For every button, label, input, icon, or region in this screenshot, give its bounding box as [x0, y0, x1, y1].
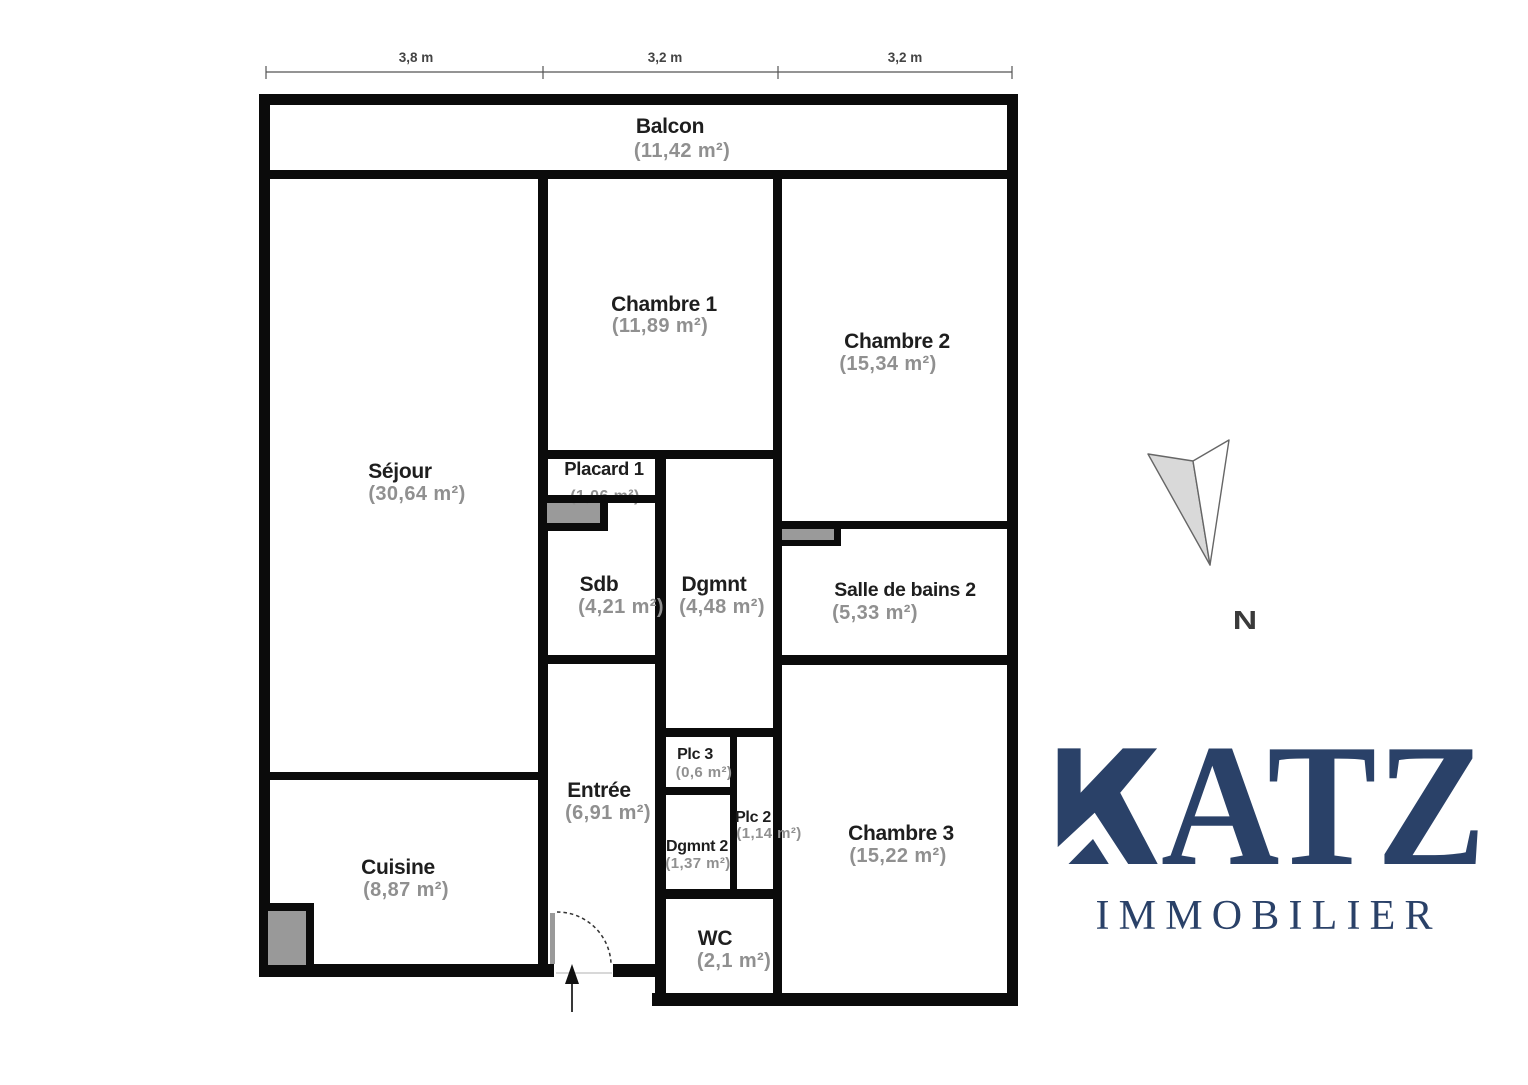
svg-text:Dgmnt 2: Dgmnt 2 — [666, 838, 728, 855]
svg-text:(11,42 m²): (11,42 m²) — [634, 140, 730, 162]
svg-text:(8,87 m²): (8,87 m²) — [363, 879, 449, 901]
svg-text:Placard 1: Placard 1 — [564, 458, 644, 479]
svg-text:Sdb: Sdb — [580, 573, 619, 596]
svg-text:Entrée: Entrée — [567, 779, 631, 802]
svg-text:(4,21 m²): (4,21 m²) — [578, 596, 664, 618]
svg-text:(0,6 m²): (0,6 m²) — [676, 764, 733, 781]
svg-text:Chambre 2: Chambre 2 — [844, 330, 950, 353]
svg-text:3,8 m: 3,8 m — [399, 50, 434, 65]
svg-text:(1,14 m²): (1,14 m²) — [736, 825, 801, 842]
svg-text:Salle de bains 2: Salle de bains 2 — [834, 579, 976, 601]
svg-text:Balcon: Balcon — [636, 115, 704, 138]
svg-text:(6,91 m²): (6,91 m²) — [565, 802, 651, 824]
svg-text:(4,48 m²): (4,48 m²) — [679, 596, 765, 618]
svg-text:Séjour: Séjour — [368, 460, 432, 483]
svg-text:Plc 3: Plc 3 — [677, 746, 713, 763]
svg-text:3,2 m: 3,2 m — [888, 50, 923, 65]
svg-text:3,2 m: 3,2 m — [648, 50, 683, 65]
svg-text:(5,33 m²): (5,33 m²) — [832, 602, 918, 624]
svg-text:(1,37 m²): (1,37 m²) — [665, 855, 730, 872]
svg-text:(11,89 m²): (11,89 m²) — [612, 315, 708, 337]
svg-text:Cuisine: Cuisine — [361, 856, 435, 879]
svg-text:(2,1 m²): (2,1 m²) — [697, 950, 771, 972]
svg-text:Plc 2: Plc 2 — [735, 809, 771, 826]
svg-text:Chambre 1: Chambre 1 — [611, 293, 717, 316]
svg-text:Dgmnt: Dgmnt — [682, 573, 747, 596]
svg-text:WC: WC — [698, 927, 733, 950]
svg-text:N: N — [1233, 607, 1257, 635]
svg-text:Chambre 3: Chambre 3 — [848, 822, 954, 845]
svg-text:(30,64 m²): (30,64 m²) — [368, 483, 465, 505]
svg-text:ATZ: ATZ — [1161, 708, 1486, 902]
svg-text:(15,22 m²): (15,22 m²) — [849, 845, 946, 867]
svg-text:IMMOBILIER: IMMOBILIER — [1096, 893, 1433, 939]
svg-text:(15,34 m²): (15,34 m²) — [839, 353, 936, 375]
